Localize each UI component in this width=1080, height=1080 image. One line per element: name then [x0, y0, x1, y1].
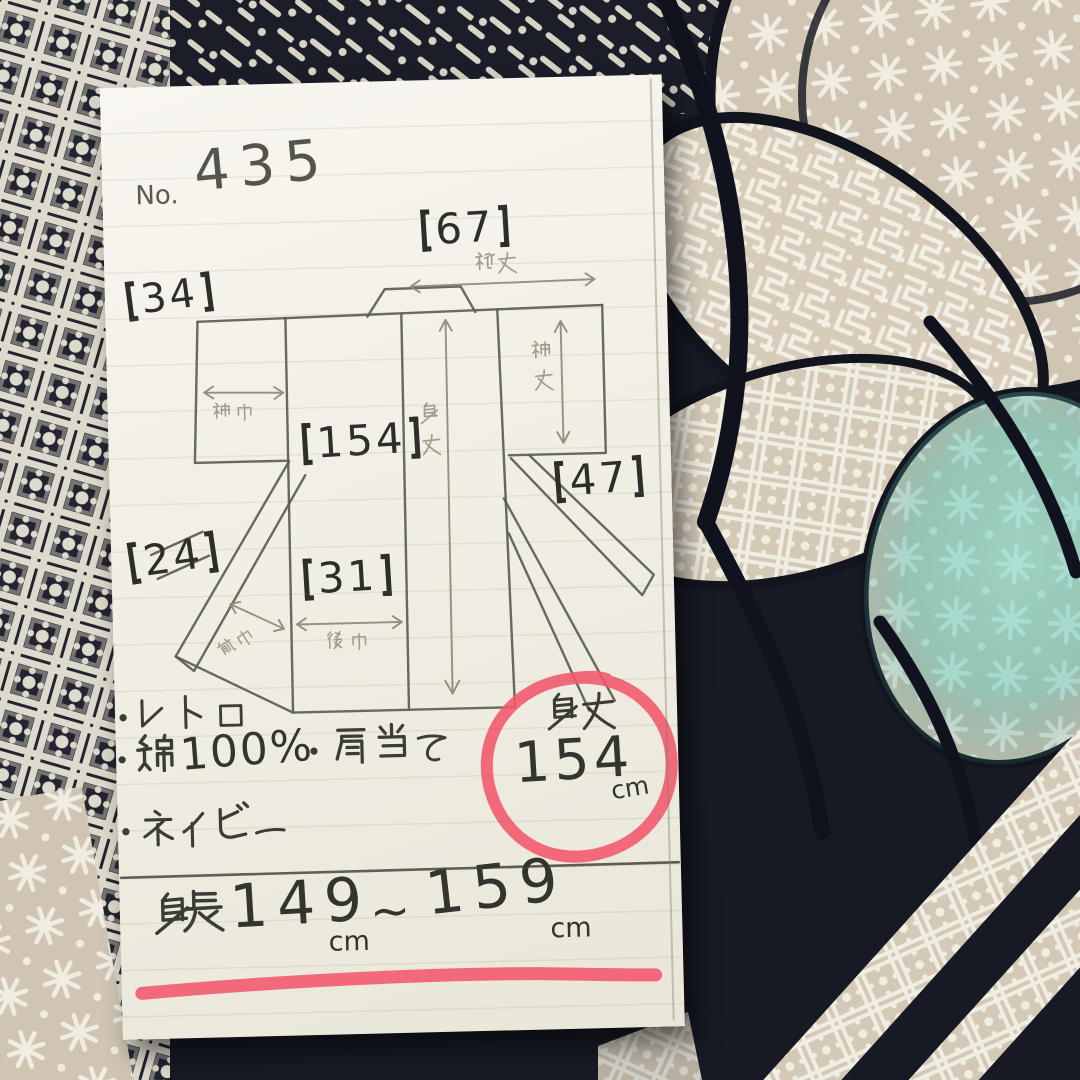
- sodetake-label-drawing: [532, 341, 549, 358]
- yukitake-label-drawing: [476, 253, 495, 270]
- section-divider-line: [121, 862, 679, 878]
- yukitake-arrow: [410, 273, 594, 292]
- mitake-arrow: [436, 320, 460, 694]
- ushirohaba-arrow: [297, 616, 402, 631]
- mitake-label-drawing: [421, 403, 438, 424]
- maehaba-label-drawing: [216, 626, 254, 660]
- photo-scene: No. 435 67 裄丈 34 袖巾 154 身丈 47 袖丈: [0, 0, 1080, 1080]
- height-to-unit: cm: [550, 914, 592, 942]
- maehaba-arrow: [230, 601, 284, 632]
- measurement-yukitake: 67 裄丈: [420, 205, 510, 252]
- note-number-label: No.: [135, 182, 179, 209]
- highlight-unit: cm: [609, 772, 651, 803]
- bracket-open-icon: [554, 461, 566, 504]
- measurement-maehaba: 24 前巾: [127, 530, 220, 584]
- highlight-mitake-drawing: [548, 694, 576, 729]
- height-label-drawing: [156, 891, 223, 934]
- bracket-open-icon: [420, 209, 431, 251]
- sodetake-arrow: [555, 321, 570, 443]
- measurement-ushirohaba: 31 後巾: [303, 554, 393, 601]
- measurement-mitake: 154 身丈: [301, 416, 420, 465]
- navy-drawing: [144, 811, 172, 845]
- bracket-open-icon: [301, 423, 312, 465]
- measurement-note-paper: No. 435 67 裄丈 34 袖巾 154 身丈 47 袖丈: [100, 74, 685, 1039]
- pink-underline: [142, 970, 656, 993]
- retro-drawing: [142, 700, 162, 726]
- sodehaba-label-drawing: [213, 403, 229, 418]
- note-number-value: 435: [191, 132, 333, 201]
- measure-arrows: [202, 273, 605, 699]
- kataate-drawing: [336, 730, 364, 763]
- height-from-unit: cm: [328, 928, 370, 956]
- ushirohaba-label-drawing: [328, 632, 342, 649]
- cotton-kanji-drawing: [137, 735, 172, 771]
- sodehaba-arrow: [204, 385, 283, 401]
- height-tilde: ~: [369, 887, 410, 936]
- bracket-open-icon: [303, 558, 314, 600]
- measurement-sodetake: 47 袖丈: [554, 455, 644, 504]
- cotton-percentage: 100%: [178, 724, 315, 778]
- height-to-value: 159: [422, 849, 569, 924]
